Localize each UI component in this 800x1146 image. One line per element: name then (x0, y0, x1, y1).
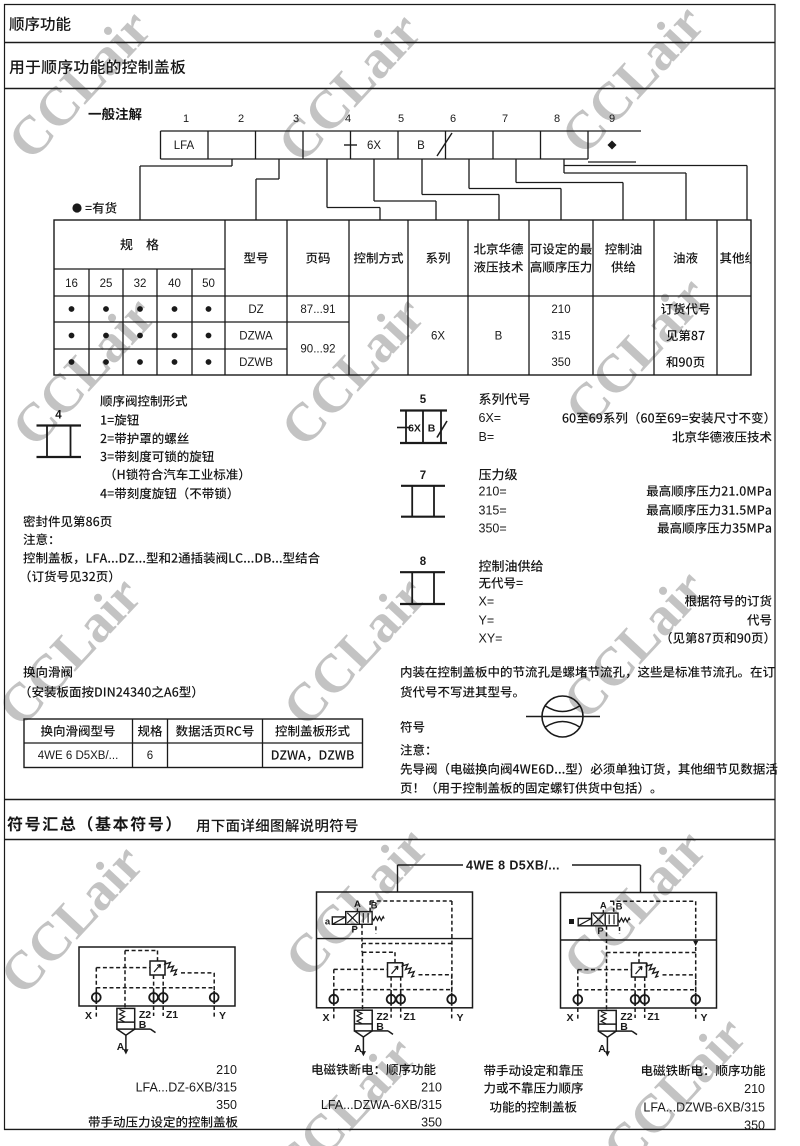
svg-text:B=: B= (479, 430, 495, 444)
svg-text:6X: 6X (408, 423, 421, 435)
svg-text:1: 1 (183, 113, 189, 125)
svg-text:CCLair: CCLair (0, 833, 155, 1006)
svg-text:8: 8 (554, 113, 560, 125)
svg-text:350: 350 (421, 1116, 442, 1130)
svg-text:210: 210 (216, 1063, 237, 1077)
svg-text:16: 16 (65, 278, 78, 290)
svg-text:LFA...DZWA-6XB/315: LFA...DZWA-6XB/315 (321, 1098, 442, 1112)
svg-text:8: 8 (420, 556, 427, 568)
svg-text:B: B (417, 140, 425, 152)
svg-text:4WE 8 D5XB/...: 4WE 8 D5XB/... (466, 859, 560, 873)
svg-text:350: 350 (216, 1098, 237, 1112)
svg-text:50: 50 (202, 278, 215, 290)
svg-text:B: B (495, 331, 503, 343)
svg-text:25: 25 (100, 278, 113, 290)
svg-text:2: 2 (238, 113, 244, 125)
svg-text:350: 350 (551, 357, 570, 369)
svg-text:6X=: 6X= (479, 411, 502, 425)
svg-text:B: B (428, 423, 436, 435)
svg-text:6: 6 (450, 113, 456, 125)
svg-text:40: 40 (168, 278, 181, 290)
svg-text:350: 350 (744, 1119, 765, 1133)
svg-text:LFA...DZWB-6XB/315: LFA...DZWB-6XB/315 (643, 1101, 765, 1115)
svg-text:32: 32 (134, 278, 147, 290)
svg-text:CCLair: CCLair (0, 0, 163, 171)
svg-text:Y=: Y= (479, 614, 495, 628)
svg-text:DZWB: DZWB (239, 357, 273, 369)
svg-text:DZWA: DZWA (239, 331, 273, 343)
svg-text:5: 5 (420, 394, 427, 406)
svg-text:315=: 315= (479, 504, 507, 518)
svg-text:XY=: XY= (479, 632, 503, 646)
svg-text:6X: 6X (367, 140, 381, 152)
svg-text:90...92: 90...92 (300, 344, 335, 356)
svg-text:CCLair: CCLair (551, 558, 718, 731)
svg-text:X=: X= (479, 595, 495, 609)
svg-text:87...91: 87...91 (300, 304, 335, 316)
svg-text:LFA...DZ-6XB/315: LFA...DZ-6XB/315 (136, 1081, 237, 1095)
svg-text:210: 210 (421, 1081, 442, 1095)
svg-text:350=: 350= (479, 522, 507, 536)
svg-text:210: 210 (744, 1082, 765, 1096)
svg-text:B: B (616, 902, 623, 913)
svg-text:CCLair: CCLair (266, 1, 433, 174)
svg-text:6X: 6X (431, 331, 445, 343)
svg-text:5: 5 (398, 113, 404, 125)
svg-text:CCLair: CCLair (551, 818, 718, 991)
svg-text:210: 210 (551, 304, 570, 316)
svg-text:4WE 6 D5XB/...: 4WE 6 D5XB/... (38, 750, 119, 762)
svg-text:DZ: DZ (248, 304, 263, 316)
svg-text:9: 9 (609, 113, 615, 125)
svg-text:CCLair: CCLair (261, 1025, 428, 1146)
svg-text:4: 4 (55, 410, 62, 422)
svg-text:LFA: LFA (174, 140, 195, 152)
svg-text:315: 315 (551, 331, 570, 343)
svg-text:210=: 210= (479, 485, 507, 499)
svg-text:CCLair: CCLair (549, 0, 716, 166)
svg-text:7: 7 (420, 470, 426, 482)
svg-text:7: 7 (502, 113, 508, 125)
svg-text:CCLair: CCLair (0, 565, 153, 738)
svg-text:a: a (325, 917, 331, 928)
svg-text:6: 6 (147, 750, 153, 762)
svg-text:B: B (371, 901, 378, 912)
svg-text:4: 4 (345, 113, 351, 125)
svg-text:CCLair: CCLair (553, 265, 720, 438)
svg-text:3: 3 (293, 113, 299, 125)
